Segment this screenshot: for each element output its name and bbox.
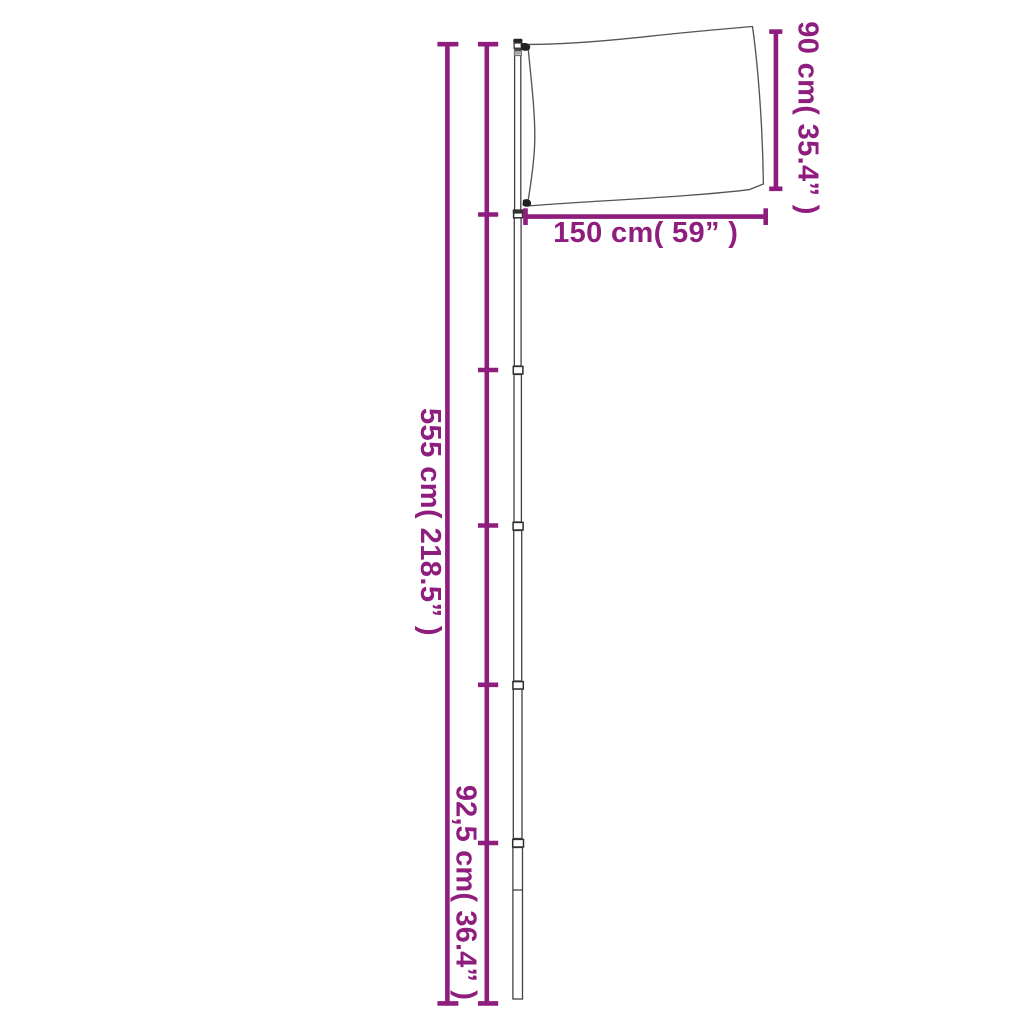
svg-text:92,5 cm( 36.4” ): 92,5 cm( 36.4” ) (449, 785, 481, 1000)
svg-text:90 cm( 35.4” ): 90 cm( 35.4” ) (792, 21, 824, 215)
svg-text:555 cm( 218.5” ): 555 cm( 218.5” ) (414, 408, 446, 636)
svg-text:150 cm( 59” ): 150 cm( 59” ) (553, 217, 738, 249)
